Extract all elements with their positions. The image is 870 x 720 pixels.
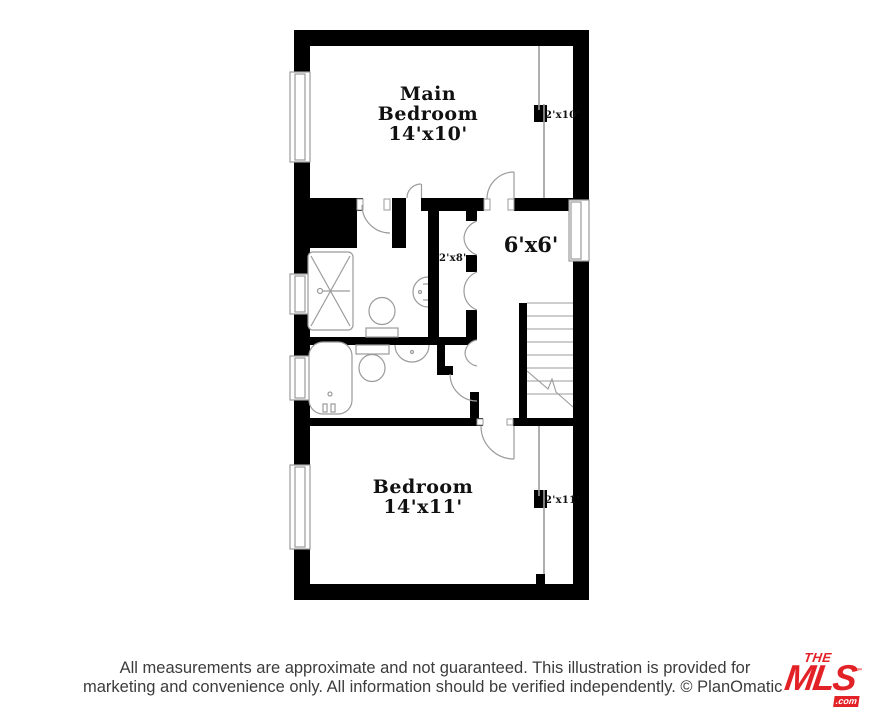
logo-mls-text: MLS bbox=[782, 657, 858, 699]
window bbox=[569, 200, 589, 261]
stairs bbox=[527, 303, 573, 407]
room-dims: 14'x11' bbox=[362, 497, 484, 517]
window bbox=[290, 465, 310, 549]
closet-label-hall: 2'x8' bbox=[439, 253, 471, 264]
toilet bbox=[356, 345, 389, 382]
shower bbox=[308, 252, 353, 330]
main-bedroom-door-arc bbox=[487, 172, 514, 199]
closet-dims: 2'x10' bbox=[545, 110, 580, 121]
room-label-main-bedroom: Main Bedroom 14'x10' bbox=[368, 84, 488, 144]
room-name: Main Bedroom bbox=[378, 83, 478, 125]
room-label-bedroom: Bedroom 14'x11' bbox=[362, 477, 484, 517]
bedroom-door-arc bbox=[481, 426, 514, 459]
hall-door-arc bbox=[407, 184, 421, 198]
bathtub bbox=[309, 342, 352, 414]
trademark-symbol: ™ bbox=[855, 668, 863, 675]
disclaimer-line1: All measurements are approximate and not… bbox=[0, 659, 870, 678]
room-dims: 6'x6' bbox=[504, 232, 559, 257]
closet-label-bedroom: 2'x11' bbox=[545, 495, 579, 506]
closet-label-main-bedroom: 2'x10' bbox=[545, 110, 579, 121]
stairs-break-line bbox=[527, 371, 573, 407]
window bbox=[290, 72, 310, 162]
logo-dotcom-badge: .com bbox=[833, 696, 860, 707]
sink bbox=[395, 345, 429, 362]
room-name: Bedroom bbox=[373, 476, 473, 498]
closet-dims: 2'x11' bbox=[545, 495, 580, 506]
sink bbox=[413, 277, 428, 307]
window bbox=[290, 274, 310, 314]
themls-logo: THE MLS ™ .com bbox=[784, 648, 868, 710]
room-dims: 14'x10' bbox=[368, 124, 488, 144]
themls-logo-art: THE MLS ™ .com bbox=[780, 648, 870, 710]
closet-dims: 2'x8' bbox=[439, 253, 467, 264]
toilet bbox=[366, 298, 398, 338]
disclaimer-line2: marketing and convenience only. All info… bbox=[0, 678, 870, 697]
window bbox=[290, 356, 310, 400]
disclaimer-text: All measurements are approximate and not… bbox=[0, 659, 870, 696]
floor-plan-page: Main Bedroom 14'x10' Bedroom 14'x11' 6'x… bbox=[0, 0, 870, 720]
room-label-landing: 6'x6' bbox=[498, 234, 564, 256]
